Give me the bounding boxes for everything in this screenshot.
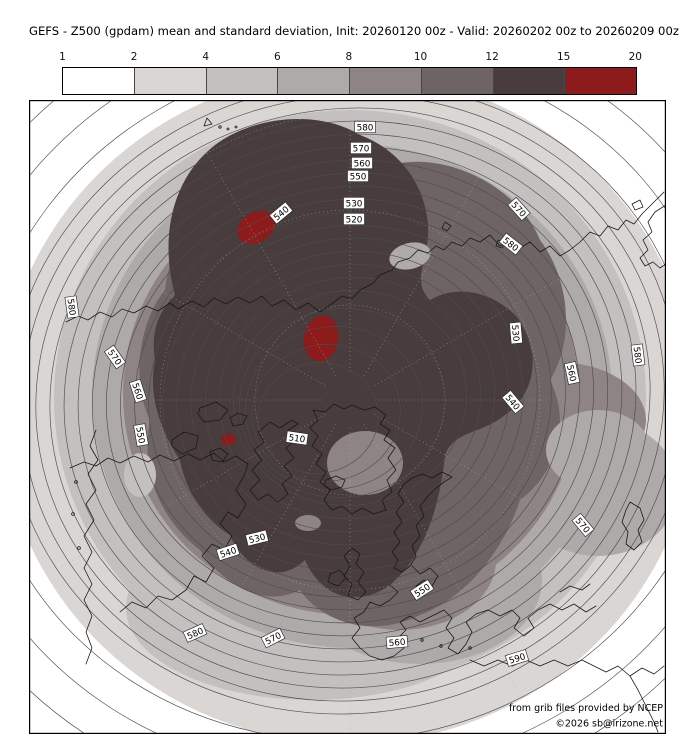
colorbar-cell (63, 68, 134, 94)
svg-text:560: 560 (388, 638, 406, 649)
colorbar-tick: 10 (414, 51, 427, 63)
colorbar-cell (134, 68, 206, 94)
svg-text:580: 580 (631, 346, 643, 364)
svg-text:520: 520 (346, 215, 363, 225)
colorbar-tick: 6 (274, 51, 281, 63)
contour-label: 530 (344, 197, 365, 209)
contour-label: 580 (630, 344, 645, 366)
colorbar-cell (206, 68, 278, 94)
svg-text:530: 530 (509, 324, 520, 342)
colorbar-tick: 1 (59, 51, 66, 63)
colorbar-tick: 15 (557, 51, 570, 63)
colorbar-tick: 4 (202, 51, 209, 63)
svg-text:560: 560 (354, 159, 371, 169)
svg-text:530: 530 (346, 199, 363, 209)
colorbar-cell (493, 68, 565, 94)
colorbar-tick: 20 (629, 51, 642, 63)
contour-label: 560 (386, 635, 408, 649)
weather-chart-page: GEFS - Z500 (gpdam) mean and standard de… (0, 0, 700, 748)
svg-text:550: 550 (350, 172, 367, 182)
colorbar-tick: 12 (485, 51, 498, 63)
credit-source: from grib files provided by NCEP (509, 703, 663, 714)
colorbar-tick: 2 (131, 51, 138, 63)
colorbar-cell (421, 68, 493, 94)
svg-text:570: 570 (353, 144, 370, 154)
colorbar (62, 67, 637, 95)
colorbar-cell (277, 68, 349, 94)
credit-copyright: ©2026 sb@irizone.net (555, 719, 663, 730)
stddev-shading (29, 100, 666, 734)
colorbar-tick: 8 (346, 51, 353, 63)
contour-label: 550 (348, 170, 369, 182)
map-canvas: 5805705605505305205405705805805705605505… (29, 100, 666, 734)
contour-label: 560 (352, 157, 373, 169)
contour-label: 520 (344, 213, 365, 225)
chart-title: GEFS - Z500 (gpdam) mean and standard de… (29, 24, 689, 38)
svg-text:580: 580 (357, 123, 374, 133)
contour-label: 580 (355, 121, 376, 133)
colorbar-tick-row: 1246810121520 (0, 51, 700, 65)
colorbar-cell (349, 68, 421, 94)
contour-label: 530 (509, 322, 523, 344)
colorbar-cell (564, 68, 636, 94)
contour-label: 570 (351, 142, 372, 154)
